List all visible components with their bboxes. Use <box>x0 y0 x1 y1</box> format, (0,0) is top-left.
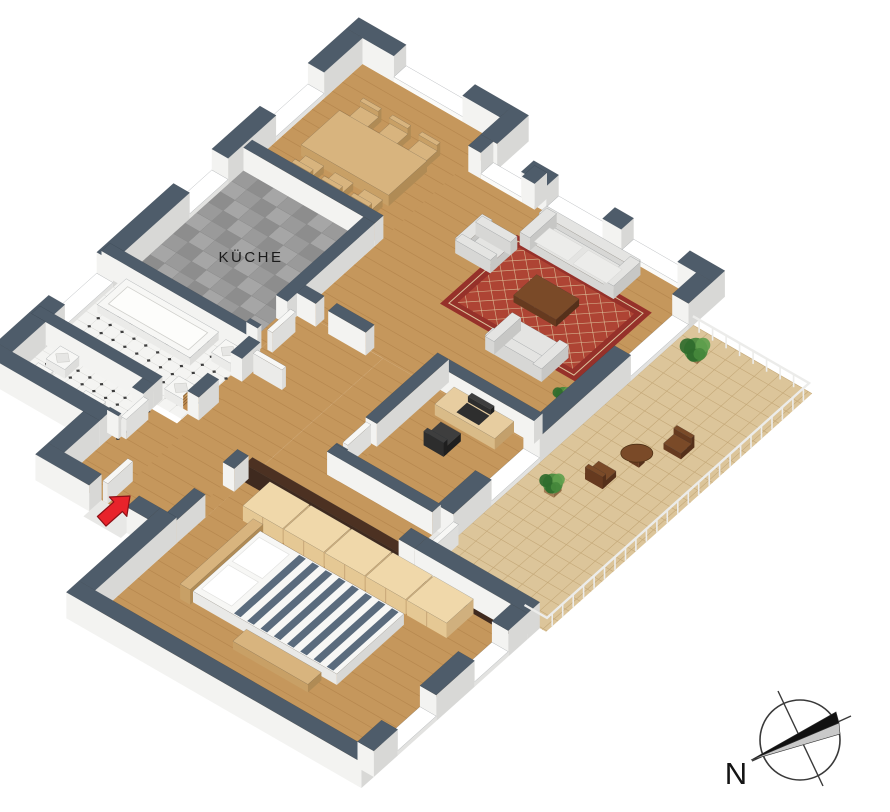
floorplan-image: KÜCHE N <box>0 0 890 812</box>
compass-rose-icon: N <box>725 691 851 791</box>
kitchen-room-label: KÜCHE <box>218 248 283 266</box>
floorplan-stage: KÜCHE N <box>0 0 890 812</box>
floorplan-3d-scene <box>0 18 812 789</box>
compass-north-label: N <box>725 756 747 791</box>
